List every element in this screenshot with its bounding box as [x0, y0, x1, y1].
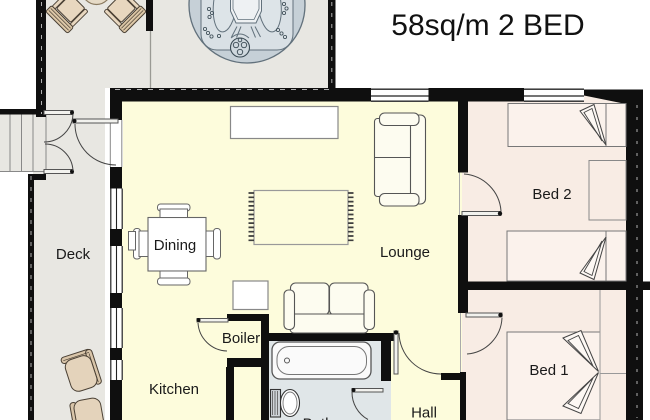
svg-text:Bed 2: Bed 2: [532, 186, 571, 203]
svg-text:58sq/m 2 BED: 58sq/m 2 BED: [391, 9, 584, 42]
svg-text:Hall: Hall: [411, 405, 437, 420]
svg-text:Deck: Deck: [56, 246, 91, 263]
svg-text:Kitchen: Kitchen: [149, 381, 199, 398]
svg-text:Boiler: Boiler: [222, 330, 260, 347]
svg-text:Lounge: Lounge: [380, 244, 430, 261]
svg-text:Dining: Dining: [154, 237, 197, 254]
svg-text:Bed 1: Bed 1: [529, 362, 568, 379]
svg-text:Bath: Bath: [303, 416, 334, 420]
